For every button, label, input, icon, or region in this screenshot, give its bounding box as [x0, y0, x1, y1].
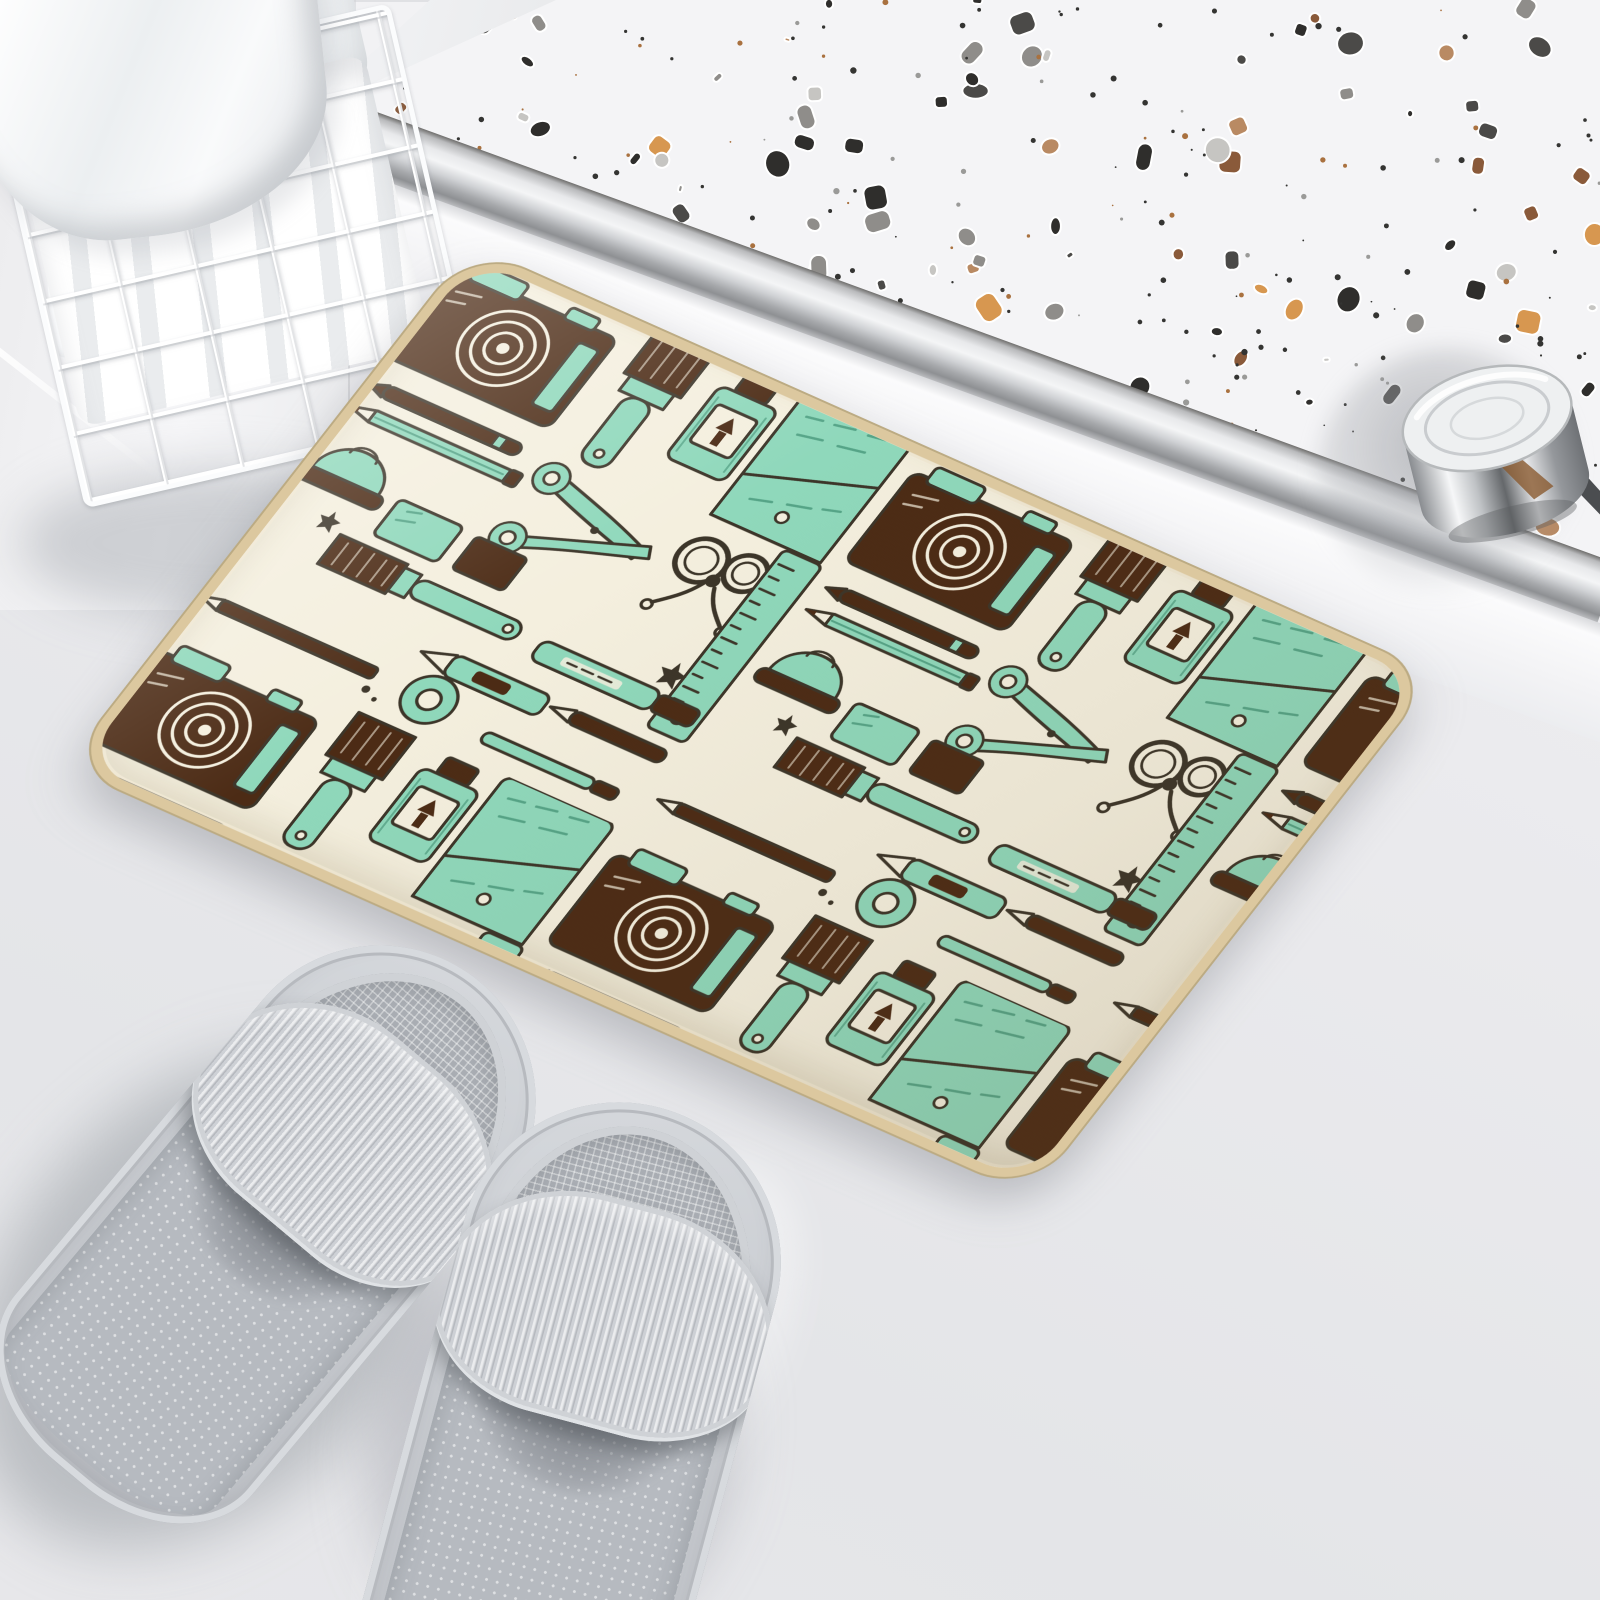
- bathroom-scene: [0, 0, 1600, 1600]
- chrome-knob: [1360, 300, 1600, 650]
